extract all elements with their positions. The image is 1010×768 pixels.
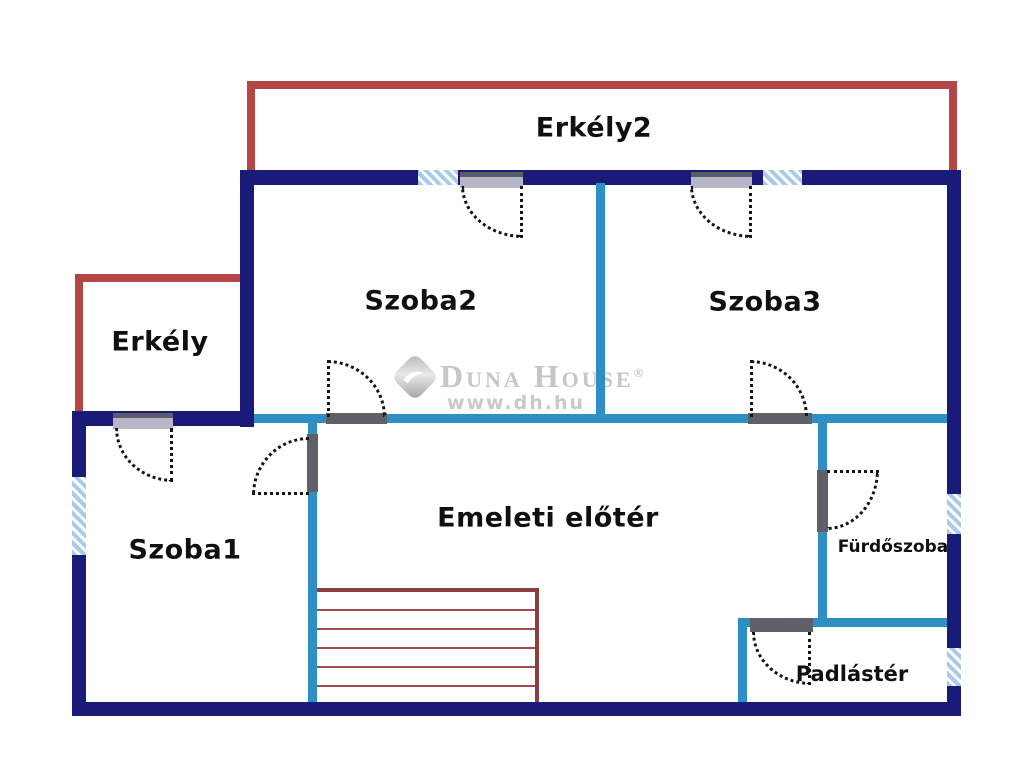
wall-erkely2-right	[949, 81, 957, 173]
wall-outer-left-lower	[72, 411, 86, 716]
wall-szoba2-szoba3	[596, 183, 605, 416]
wall-erkely2-left	[247, 81, 255, 173]
swan-swoosh-icon	[401, 365, 427, 391]
door-arc-szoba1-erkely	[115, 428, 173, 482]
door-arc-szoba3-entrance	[690, 186, 752, 238]
registered-mark: ®	[634, 365, 644, 380]
window-szoba3-top	[763, 170, 802, 185]
room-label-padlaster: Padlástér	[796, 662, 909, 686]
door-arc-szoba3-hall	[750, 360, 808, 417]
room-label-szoba2: Szoba2	[364, 286, 477, 317]
duna-house-logo-icon	[391, 353, 439, 401]
wall-outer-bottom	[72, 702, 961, 716]
wall-outer-right	[947, 170, 961, 716]
wall-erkely2-top	[247, 81, 957, 89]
watermark-url: www.dh.hu	[447, 392, 585, 414]
room-label-szoba1: Szoba1	[128, 535, 241, 566]
door-sill-padlaster	[750, 618, 813, 632]
room-label-szoba3: Szoba3	[708, 287, 821, 318]
window-padlaster-right	[947, 648, 961, 686]
window-szoba1-left	[72, 477, 86, 555]
window-furdoszoba-right	[947, 494, 961, 534]
room-label-erkely2: Erkély2	[536, 113, 652, 144]
wall-erkely-left	[75, 274, 83, 414]
door-arc-szoba2-entrance	[461, 186, 523, 238]
wall-outer-left-upper	[240, 170, 254, 427]
door-sill-szoba1-erkely	[113, 413, 173, 429]
door-arc-furdoszoba	[827, 470, 879, 530]
floor-plan: Duna House® www.dh.hu Erkély2 Szoba2 Szo…	[0, 0, 1010, 768]
door-arc-szoba1-hall	[252, 437, 309, 495]
door-arc-szoba2-hall	[327, 360, 386, 417]
window-szoba2-top	[418, 170, 458, 185]
staircase	[317, 588, 539, 702]
room-label-emeleti-eloter: Emeleti előtér	[437, 503, 659, 534]
room-label-furdoszoba: Fürdőszoba	[838, 537, 948, 557]
wall-padlaster-left	[738, 618, 747, 702]
room-label-erkely: Erkély	[111, 327, 208, 358]
wall-erkely-top	[75, 274, 247, 282]
watermark-brand: Duna House®	[440, 360, 643, 392]
